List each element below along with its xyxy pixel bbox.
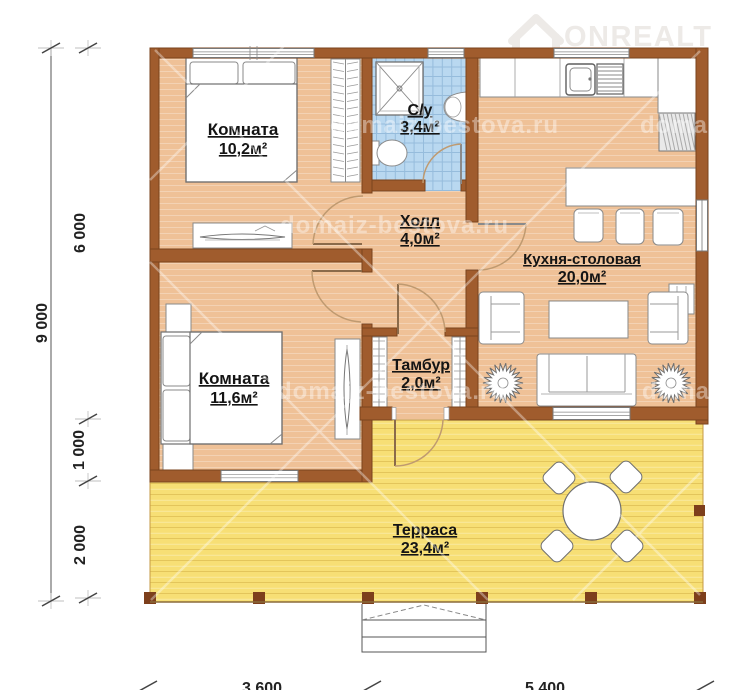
svg-text:Комната: Комната: [208, 120, 279, 139]
svg-text:11,6м²: 11,6м²: [210, 390, 257, 407]
svg-text:domaiz-bestova.ru: domaiz-bestova.ru: [330, 112, 559, 139]
svg-text:domaiz-bestova.ru: domaiz-bestova.ru: [277, 378, 506, 405]
svg-text:Кухня-столовая: Кухня-столовая: [523, 251, 641, 268]
svg-text:3,600: 3,600: [242, 680, 282, 690]
svg-text:20,0м²: 20,0м²: [558, 269, 606, 286]
svg-text:5,400: 5,400: [525, 680, 565, 690]
svg-text:1 000: 1 000: [71, 430, 88, 470]
svg-text:doma-: doma-: [640, 112, 717, 139]
svg-text:2 000: 2 000: [72, 525, 89, 565]
svg-text:doma-: doma-: [642, 378, 719, 405]
svg-text:Тамбур: Тамбур: [392, 357, 450, 374]
svg-text:9 000: 9 000: [34, 303, 51, 343]
svg-text:domaiz-bestova.ru: domaiz-bestova.ru: [280, 212, 509, 239]
svg-text:6 000: 6 000: [72, 213, 89, 253]
